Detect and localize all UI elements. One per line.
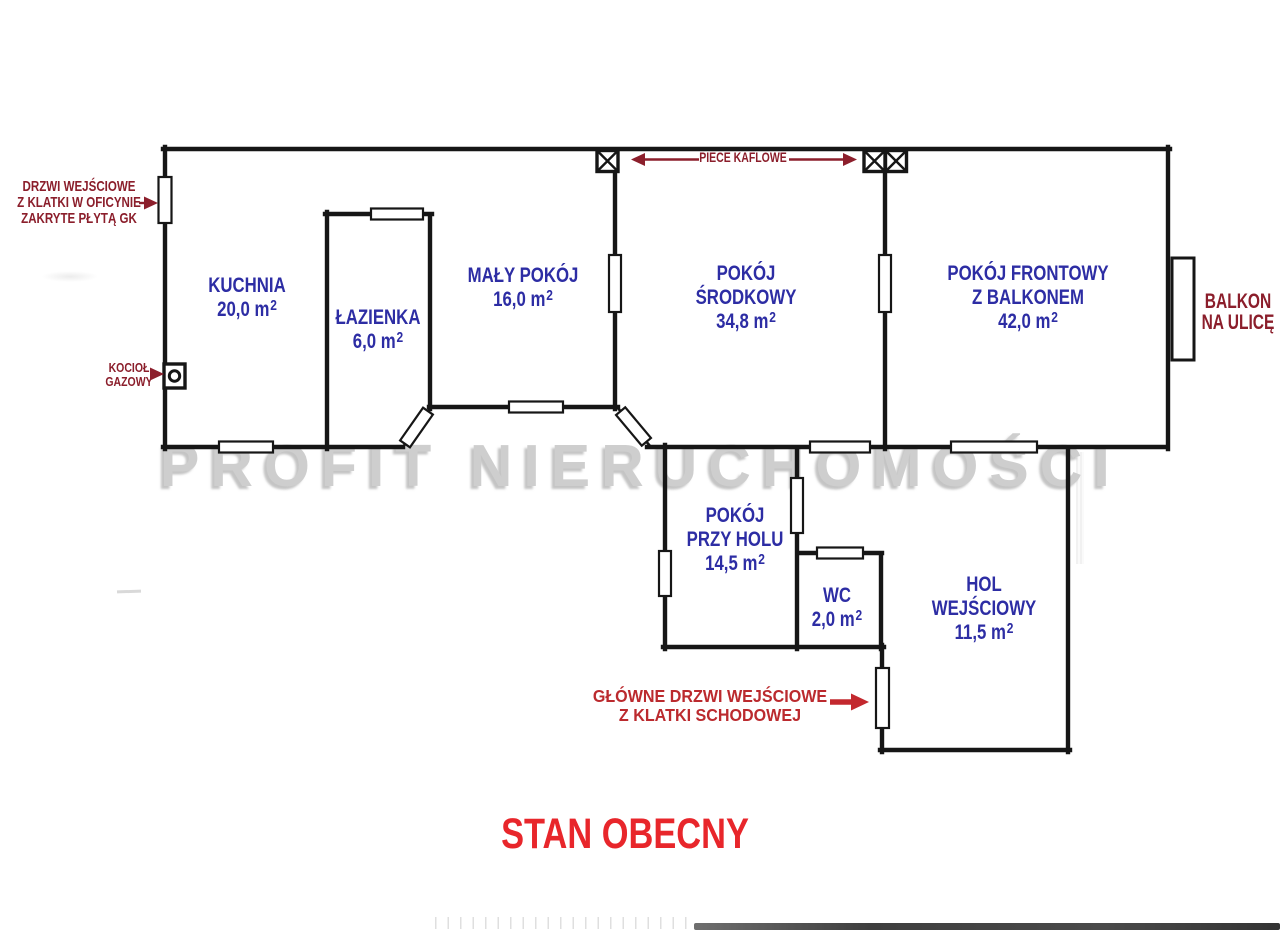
floor-plan-drawing (0, 0, 1280, 930)
annotation-line: Z KLATKI W OFICYNIE (0, 195, 179, 211)
room-name: POKÓJ (615, 504, 855, 528)
window-marker (219, 442, 273, 453)
room-name: HOL (864, 573, 1104, 597)
annotation-balcony: BALKON NA ULICĘ (1142, 292, 1280, 333)
annotation-line: Z KLATKI SCHODOWEJ (590, 706, 829, 725)
tile-stove-icon (597, 151, 618, 172)
annotation-line: PIECE KAFLOWE (699, 149, 787, 165)
room-label-pokoj-frontowy: POKÓJ FRONTOWY Z BALKONEM 42,0 m2 (908, 262, 1148, 336)
annotation-line: ZAKRYTE PŁYTĄ GK (0, 211, 179, 227)
room-name: POKÓJ FRONTOWY (908, 262, 1148, 286)
room-name: PRZY HOLU (615, 528, 855, 552)
room-area: 14,5 m2 (615, 552, 855, 578)
room-area: 34,8 m2 (626, 310, 866, 336)
annotation-line: KOCIOŁ (20, 362, 238, 376)
room-name: ŚRODKOWY (626, 286, 866, 310)
annotation-line: GAZOWY (20, 376, 238, 390)
room-label-pokoj-przy-holu: POKÓJ PRZY HOLU 14,5 m2 (615, 504, 855, 578)
room-name: Z BALKONEM (908, 286, 1148, 310)
page-title: STAN OBECNY (489, 810, 761, 859)
room-name: WEJŚCIOWY (864, 597, 1104, 621)
room-label-maly-pokoj: MAŁY POKÓJ 16,0 m2 (403, 264, 643, 314)
door-marker (371, 209, 423, 220)
annotation-line: BALKON (1142, 292, 1280, 313)
door-marker (879, 255, 891, 312)
floor-plan-page: PROFIT NIERUCHOMOŚCI (0, 0, 1280, 930)
main-entrance-door-marker (876, 668, 889, 728)
annotation-tile-stoves: PIECE KAFLOWE (646, 149, 841, 165)
scan-bar (694, 923, 1280, 930)
room-label-pokoj-srodkowy: POKÓJ ŚRODKOWY 34,8 m2 (626, 262, 866, 336)
scan-ticks (424, 917, 696, 929)
room-area: 16,0 m2 (403, 288, 643, 314)
room-area: 42,0 m2 (908, 310, 1148, 336)
annotation-main-entrance: GŁÓWNE DRZWI WEJŚCIOWE Z KLATKI SCHODOWE… (590, 687, 829, 724)
annotation-side-door: DRZWI WEJŚCIOWE Z KLATKI W OFICYNIE ZAKR… (0, 179, 179, 227)
annotation-line: DRZWI WEJŚCIOWE (0, 179, 179, 195)
tile-stove-icon (864, 151, 907, 172)
room-label-hol-wejsciowy: HOL WEJŚCIOWY 11,5 m2 (864, 573, 1104, 647)
room-name: POKÓJ (626, 262, 866, 286)
room-name: MAŁY POKÓJ (403, 264, 643, 288)
annotation-line: NA ULICĘ (1142, 313, 1280, 334)
door-marker (810, 442, 870, 453)
room-area: 6,0 m2 (258, 330, 498, 356)
room-area: 11,5 m2 (864, 621, 1104, 647)
annotation-line: GŁÓWNE DRZWI WEJŚCIOWE (590, 687, 829, 706)
window-marker (509, 402, 563, 413)
annotation-gas-boiler: KOCIOŁ GAZOWY (20, 362, 238, 389)
door-marker (951, 442, 1037, 453)
room-name: KUCHNIA (127, 274, 367, 298)
